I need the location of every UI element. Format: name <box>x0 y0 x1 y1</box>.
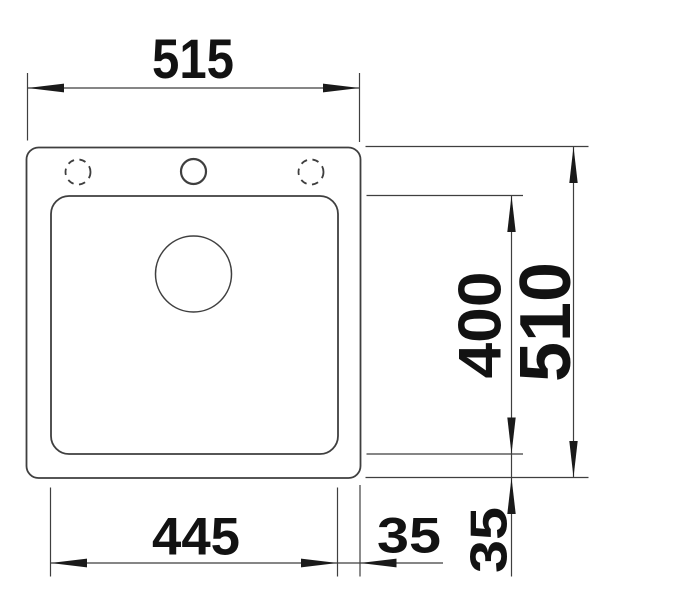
dim-bowl-side-offset-label: 35 <box>377 508 441 564</box>
dim-bowl-depth-label: 400 <box>447 272 514 379</box>
dim-overall-width-label: 515 <box>152 27 234 90</box>
dim-bowl-bottom-offset-label: 35 <box>461 507 519 573</box>
dim-bowl-width-label: 445 <box>152 508 240 567</box>
canvas-background <box>0 0 697 599</box>
sink-dimension-diagram: 515 445 35 400 35 510 <box>0 0 697 599</box>
technical-drawing-canvas: 515 445 35 400 35 510 <box>0 0 697 599</box>
dim-overall-depth-label: 510 <box>506 262 586 382</box>
